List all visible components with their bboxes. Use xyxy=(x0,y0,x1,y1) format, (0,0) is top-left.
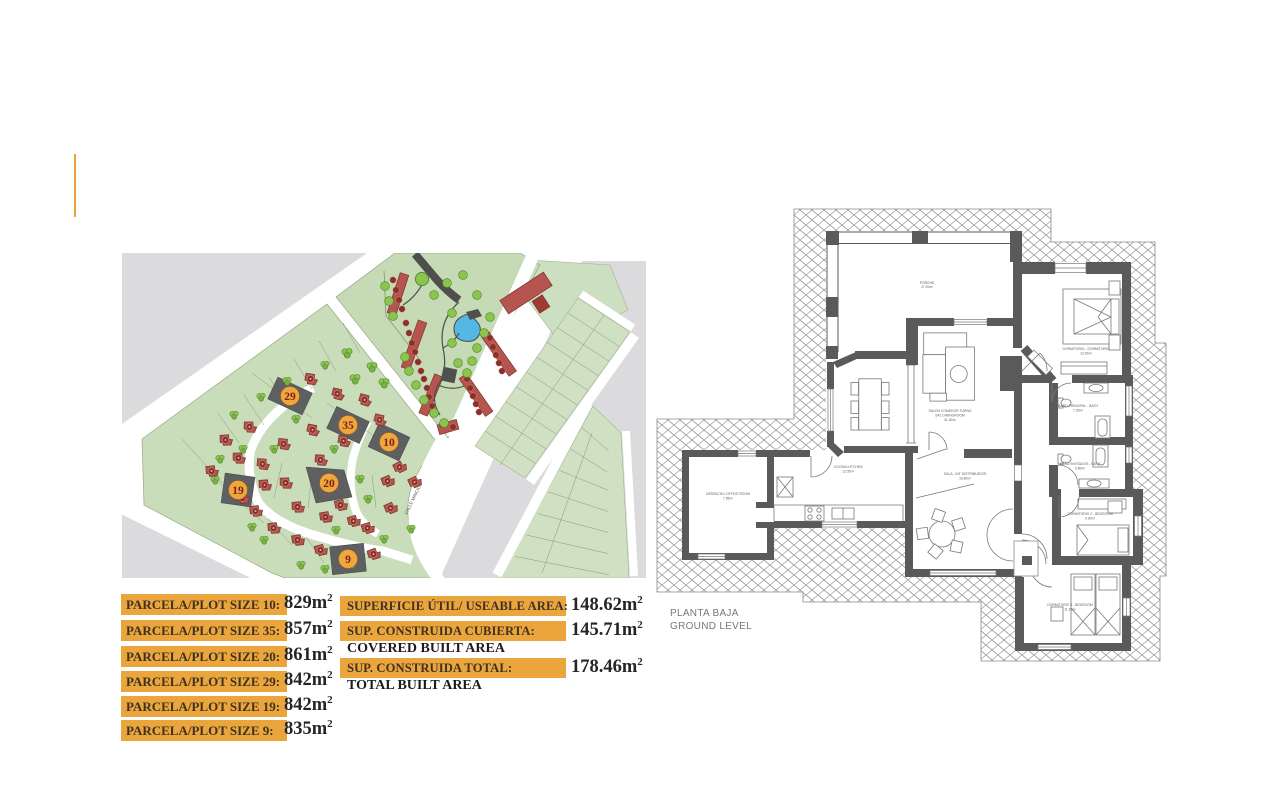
svg-text:9: 9 xyxy=(345,554,351,566)
svg-text:BAÑO INVITADOS - BATH: BAÑO INVITADOS - BATH xyxy=(1060,461,1101,466)
svg-text:20: 20 xyxy=(323,478,335,490)
svg-text:31.30m²: 31.30m² xyxy=(944,418,956,422)
svg-text:DORMITORIO 3 - BEDROOM: DORMITORIO 3 - BEDROOM xyxy=(1047,603,1093,607)
svg-text:GROUND LEVEL: GROUND LEVEL xyxy=(670,621,752,632)
svg-text:7.25m²: 7.25m² xyxy=(1073,409,1083,413)
svg-text:9.30m²: 9.30m² xyxy=(1085,517,1095,521)
svg-text:BAÑO PRINCIPAL - BATH: BAÑO PRINCIPAL - BATH xyxy=(1058,403,1098,408)
svg-text:11.30m²: 11.30m² xyxy=(1064,608,1075,612)
svg-text:12.05m²: 12.05m² xyxy=(842,470,854,474)
svg-text:5.80m²: 5.80m² xyxy=(1075,467,1085,471)
svg-text:SALA - INT DISTRIBUIDOR: SALA - INT DISTRIBUIDOR xyxy=(944,472,987,476)
svg-text:DESPACHO-OFFICE ROOM: DESPACHO-OFFICE ROOM xyxy=(706,492,750,496)
svg-text:SALON COMEDOR TURNO: SALON COMEDOR TURNO xyxy=(928,409,971,413)
svg-text:7.55m²: 7.55m² xyxy=(723,497,733,501)
svg-text:PLANTA BAJA: PLANTA BAJA xyxy=(670,608,739,619)
svg-text:SAL DININGROOM: SAL DININGROOM xyxy=(935,414,965,418)
svg-text:COCINA KITCHEN: COCINA KITCHEN xyxy=(834,465,863,469)
svg-text:35: 35 xyxy=(342,420,354,432)
svg-text:13.20m²: 13.20m² xyxy=(1080,352,1092,356)
svg-text:DORMITORIO - DORMITORIO: DORMITORIO - DORMITORIO xyxy=(1063,347,1110,351)
svg-text:17.20m²: 17.20m² xyxy=(921,285,933,289)
svg-text:29: 29 xyxy=(284,391,296,403)
svg-text:19: 19 xyxy=(232,485,244,497)
svg-text:16.80m²: 16.80m² xyxy=(959,477,971,481)
svg-text:10: 10 xyxy=(383,437,395,449)
svg-text:DORMITORIO 2 - BEDROOM: DORMITORIO 2 - BEDROOM xyxy=(1067,512,1113,516)
